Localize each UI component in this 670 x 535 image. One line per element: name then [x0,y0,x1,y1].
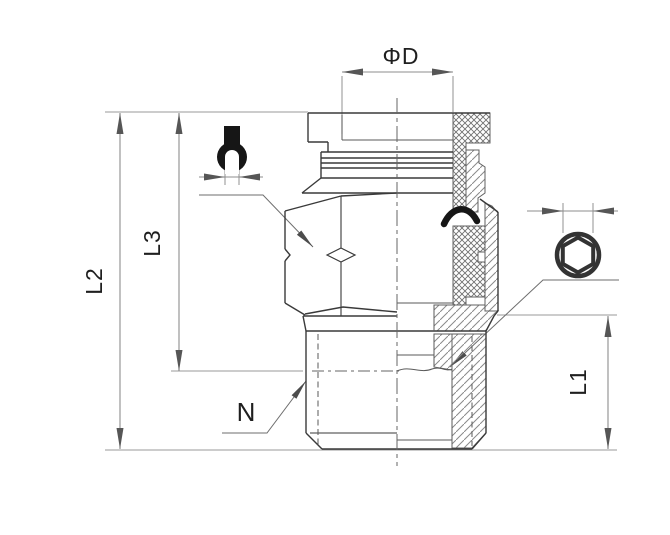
dimension-phi-d: ΦD [342,43,453,76]
arrow-up-icon [117,113,124,134]
l3-label: L3 [139,229,165,257]
l1-label: L1 [565,368,591,396]
arrow-left-icon [593,208,614,215]
leader-arrow-thread-icon [292,381,306,399]
l2-label: L2 [81,267,107,295]
arrow-right-icon [432,69,453,76]
dimension-l3: L3 [139,113,183,371]
arrow-right-icon [542,208,563,215]
body-wall-section [485,203,498,311]
arrow-up-icon [605,316,612,337]
arrow-up-icon [176,113,183,134]
drawing-canvas: ΦD L2 L3 L1 N [0,0,670,535]
dimension-l1: L1 [565,316,612,449]
leader-arrow-wrench-icon [297,231,313,248]
collet-upper-section [466,150,485,212]
phi-d-label: ΦD [383,43,420,69]
hex-socket-icon [557,234,599,276]
o-ring-seal [444,209,477,224]
dimension-hex-size [527,208,618,215]
arrow-left-icon [239,174,260,181]
leader-lines [199,195,619,433]
technical-drawing: ΦD L2 L3 L1 N [0,0,670,535]
dimension-wrench-size [199,174,263,181]
arrow-down-icon [117,428,124,449]
thread-wall-section [452,334,486,448]
hex-flat-diamond-mark [327,248,355,262]
collet-lower-section [453,226,485,305]
thread-n-label: N [237,397,256,427]
arrow-down-icon [605,428,612,449]
centerline [312,98,399,466]
arrow-left-icon [342,69,363,76]
arrow-right-icon [204,174,225,181]
arrow-down-icon [176,350,183,371]
wrench-icon [217,126,247,174]
socket-wall-section [434,334,452,370]
dimension-l2: L2 [81,113,124,449]
